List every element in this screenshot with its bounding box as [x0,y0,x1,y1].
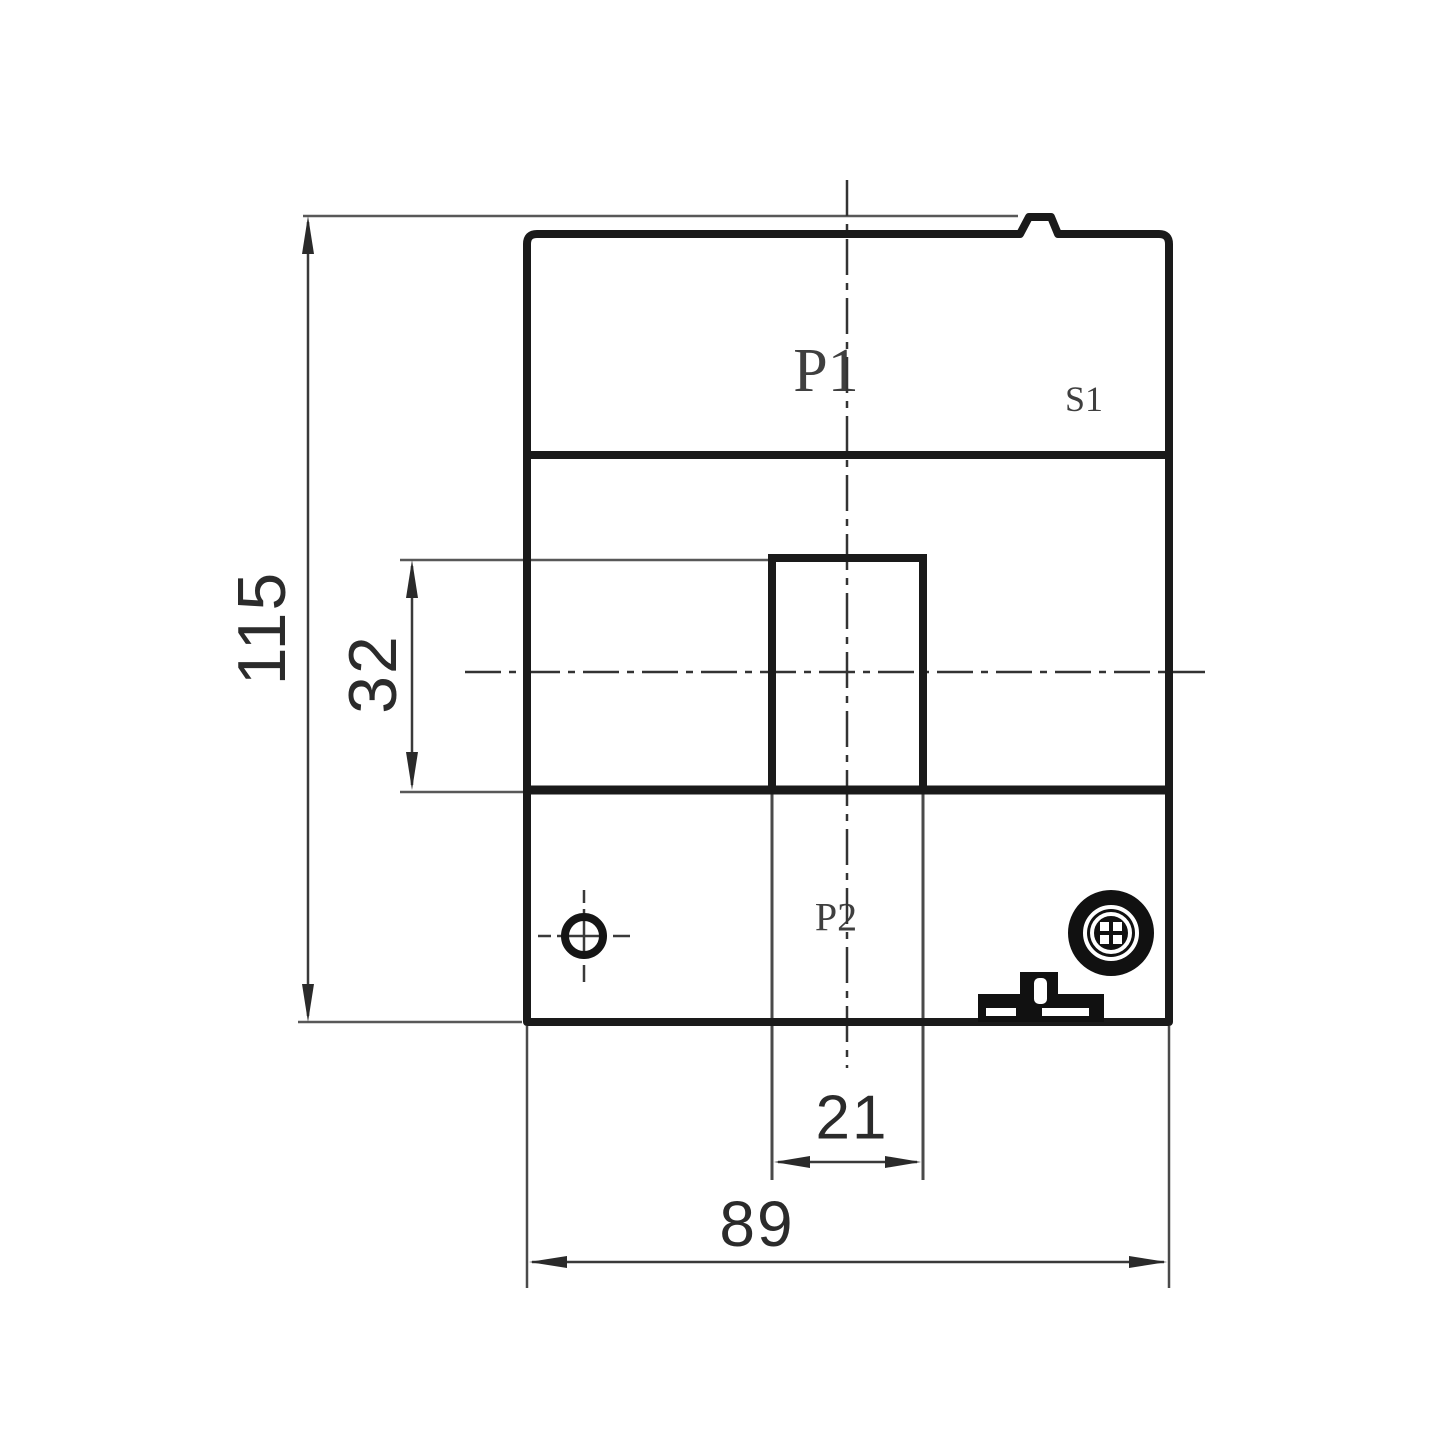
clip-tab-notch [1034,978,1047,1004]
connector-pin-hole [1100,922,1109,931]
arrowhead-up-icon [406,560,418,598]
dimension-label-89: 89 [719,1188,794,1260]
connector-inner-disc [1087,909,1135,957]
arrowhead-right-icon [885,1156,921,1168]
dimension-label-115: 115 [224,571,300,685]
arrowhead-left-icon [774,1156,810,1168]
drawing-canvas: 115 32 21 89 P1 S1 P2 [0,0,1445,1445]
terminal-label-s1: S1 [1065,379,1103,419]
connector-pin-hole [1113,935,1122,944]
terminal-label-p1: P1 [793,337,858,405]
dimension-label-32: 32 [335,634,411,714]
connector-pin-hole [1113,922,1122,931]
dimension-overall-height: 115 [224,216,1018,1022]
clip-base-slot [1042,1008,1089,1016]
connector-pin-hole [1100,935,1109,944]
dimension-label-21: 21 [816,1084,889,1153]
arrowhead-left-icon [529,1256,567,1268]
din-rail-clip [978,972,1104,1022]
connector-port [1076,898,1147,969]
arrowhead-down-icon [302,984,314,1022]
clip-base-slot [986,1008,1016,1016]
technical-drawing: 115 32 21 89 P1 S1 P2 [0,0,1445,1445]
terminal-label-p2: P2 [815,895,857,940]
arrowhead-right-icon [1129,1256,1167,1268]
dimension-window-height: 32 [335,560,770,792]
arrowhead-up-icon [302,216,314,254]
arrowhead-down-icon [406,752,418,790]
mounting-hole [538,890,630,982]
